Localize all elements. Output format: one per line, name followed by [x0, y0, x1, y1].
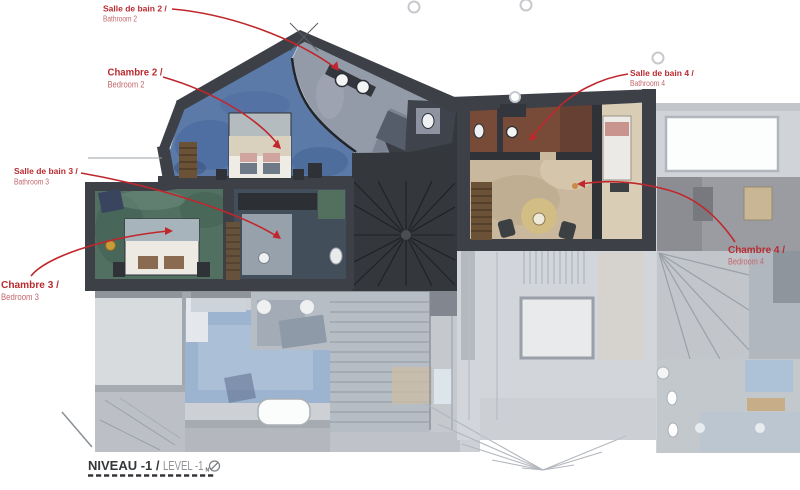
svg-text:Salle de bain 2 /: Salle de bain 2 /	[103, 4, 167, 14]
svg-text:Chambre 2 /: Chambre 2 /	[108, 67, 163, 79]
svg-text:Salle de bain 3 /: Salle de bain 3 /	[14, 166, 78, 176]
svg-text:Bathroom 4: Bathroom 4	[630, 79, 665, 88]
svg-text:Bedroom 2: Bedroom 2	[108, 80, 145, 90]
svg-text:LEVEL -1: LEVEL -1	[163, 459, 204, 473]
svg-text:Bathroom 3: Bathroom 3	[14, 178, 49, 187]
svg-text:Bedroom 4: Bedroom 4	[728, 257, 764, 267]
svg-text:Salle de bain 4 /: Salle de bain 4 /	[630, 68, 694, 78]
svg-text:N: N	[206, 468, 210, 474]
svg-text:NIVEAU -1 /: NIVEAU -1 /	[88, 458, 160, 473]
svg-text:Bedroom 3: Bedroom 3	[1, 292, 39, 302]
svg-text:Chambre 4 /: Chambre 4 /	[728, 244, 785, 256]
svg-text:Chambre 3 /: Chambre 3 /	[1, 279, 59, 291]
svg-text:Bathroom 2: Bathroom 2	[103, 15, 137, 24]
